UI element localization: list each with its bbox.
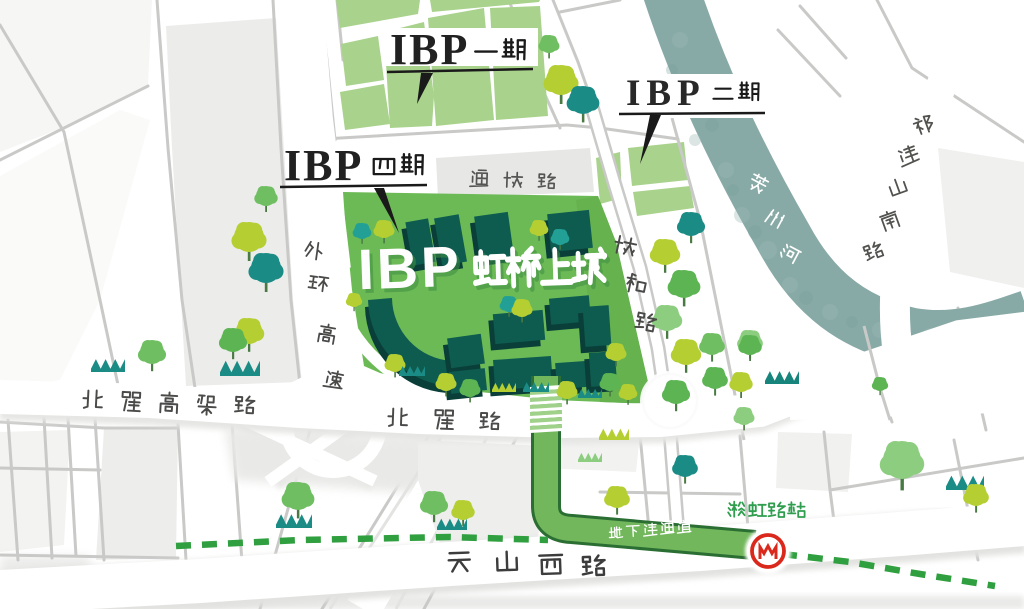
svg-text:IBP: IBP [357, 235, 463, 303]
svg-text:IBP: IBP [626, 73, 706, 114]
svg-text:IBP: IBP [284, 141, 363, 190]
svg-text:IBP: IBP [390, 25, 469, 74]
